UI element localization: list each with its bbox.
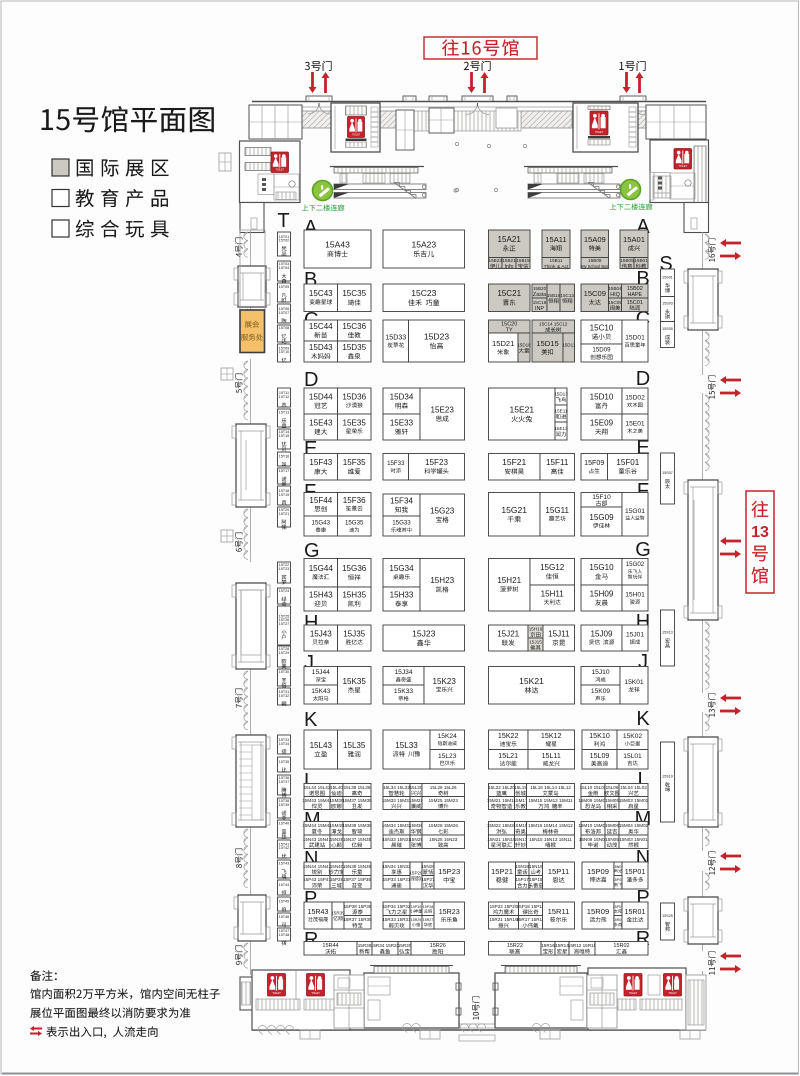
svg-text:15T05: 15T05 [279,285,289,289]
svg-text:15N43 15N41: 15N43 15N41 [303,837,332,842]
svg-text:15F34: 15F34 [390,497,413,506]
svg-text:K: K [304,709,318,731]
svg-text:15L10 15L08: 15L10 15L08 [580,785,607,790]
svg-text:15T16: 15T16 [279,454,289,458]
svg-text:15M30: 15M30 [409,823,423,828]
svg-text:15M10 15M08: 15M10 15M08 [578,823,608,828]
svg-text:15J44: 15J44 [312,669,330,676]
svg-text:15C43: 15C43 [309,289,333,298]
svg-text:15R26: 15R26 [430,943,446,949]
svg-text:15H01: 15H01 [625,592,645,599]
svg-text:15R09: 15R09 [587,907,609,916]
svg-text:15R37 15R35: 15R37 15R35 [343,917,372,922]
svg-text:15F23: 15F23 [425,458,448,467]
svg-text:15R30: 15R30 [398,943,412,948]
svg-text:15B11: 15B11 [550,258,563,263]
svg-text:15N44 15N42: 15N44 15N42 [303,864,332,869]
svg-text:15D36: 15D36 [342,393,366,402]
svg-text:15H21: 15H21 [497,576,521,585]
svg-text:15K21: 15K21 [519,676,544,686]
svg-text:15L11: 15L11 [542,752,561,760]
svg-text:15T40: 15T40 [279,822,289,826]
svg-text:15M28 15M26: 15M28 15M26 [429,823,459,828]
svg-text:15P34 15P32: 15P34 15P32 [383,904,411,909]
svg-text:15G34: 15G34 [389,564,414,573]
svg-text:15L30: 15L30 [410,785,423,790]
svg-text:15P22 15P20: 15P22 15P20 [490,904,518,909]
svg-text:15D15: 15D15 [536,339,558,348]
svg-text:15M44 15M42: 15M44 15M42 [302,823,332,828]
svg-text:15T27: 15T27 [279,622,289,626]
svg-text:15G44: 15G44 [309,564,334,573]
svg-text:15T42: 15T42 [279,846,289,850]
svg-text:15L21: 15L21 [498,752,518,760]
svg-text:15A11: 15A11 [545,235,566,244]
svg-text:15R12 15R10: 15R12 15R10 [568,943,597,948]
svg-text:15N25 15N23: 15N25 15N23 [429,837,458,842]
svg-text:15P39: 15P39 [330,877,344,882]
svg-text:15N39: 15N39 [330,837,344,842]
svg-text:15R27: 15R27 [423,918,434,922]
svg-text:15P11: 15P11 [548,867,569,876]
svg-text:15C10: 15C10 [590,324,614,333]
svg-text:15D02: 15D02 [625,395,645,402]
svg-text:15B04: 15B04 [608,286,622,291]
svg-text:15L40: 15L40 [330,785,343,790]
svg-text:15E01: 15E01 [625,421,645,428]
svg-text:15L23: 15L23 [438,753,457,760]
svg-text:15T44: 15T44 [279,883,289,887]
svg-text:15M18: 15M18 [513,823,527,828]
svg-text:15G01: 15G01 [625,508,645,515]
svg-text:15L44 15L42: 15L44 15L42 [304,785,331,790]
svg-text:15T08: 15T08 [279,326,289,330]
svg-text:15P43 15P41: 15P43 15P41 [303,877,331,882]
svg-text:15J43: 15J43 [310,630,332,639]
svg-text:15G36: 15G36 [342,564,367,573]
svg-text:15K12: 15K12 [541,732,562,740]
svg-text:15F44: 15F44 [309,496,332,505]
svg-text:15P15: 15P15 [529,877,543,882]
svg-text:15N05: 15N05 [605,837,619,842]
svg-text:15M15 15M13 15M11: 15M15 15M13 15M11 [528,798,573,803]
svg-text:15D21: 15D21 [492,339,514,348]
svg-text:15M43 15M41: 15M43 15M41 [302,798,332,803]
svg-text:15N26: 15N26 [421,864,435,869]
svg-text:15G35: 15G35 [345,520,364,527]
svg-text:15T19: 15T19 [279,493,289,497]
svg-text:15L38 15L36: 15L38 15L36 [344,785,371,790]
svg-text:15C20: 15C20 [501,322,517,328]
svg-text:15E23: 15E23 [431,406,455,415]
svg-text:15F43: 15F43 [309,458,332,467]
svg-text:15R17 15R15: 15R17 15R15 [516,917,545,922]
svg-text:15C21: 15C21 [497,289,521,298]
svg-text:15R11: 15R11 [548,907,570,916]
svg-text:HAPE: HAPE [627,292,642,298]
svg-text:15D34: 15D34 [390,393,414,402]
svg-text:15J21: 15J21 [497,630,519,639]
svg-text:D: D [636,368,650,390]
svg-text:15M22 15M20: 15M22 15M20 [487,823,517,828]
svg-text:15N16: 15N16 [529,864,543,869]
svg-text:15J11: 15J11 [548,630,570,639]
svg-text:15S13: 15S13 [662,631,673,635]
svg-text:15M05: 15M05 [605,798,619,803]
svg-text:15B21: 15B21 [502,258,516,263]
svg-text:15K43: 15K43 [311,688,331,695]
svg-text:15S07: 15S07 [662,471,673,475]
svg-text:My School Bus: My School Bus [581,264,608,269]
svg-text:15S19: 15S19 [662,775,673,779]
svg-text:15E09: 15E09 [590,419,614,428]
svg-text:15P37 15P35: 15P37 15P35 [343,877,371,882]
svg-text:K: K [636,708,650,730]
svg-text:15R21 15R19: 15R21 15R19 [489,917,518,922]
svg-text:15A01: 15A01 [623,235,645,244]
svg-text:15L09: 15L09 [590,752,610,760]
svg-text:15C35: 15C35 [342,289,366,298]
svg-text:Info: Info [505,264,514,270]
svg-text:15R22: 15R22 [507,943,523,949]
svg-text:15P01: 15P01 [625,868,646,876]
svg-text:15L04 15L02: 15L04 15L02 [620,785,647,790]
svg-text:15J10: 15J10 [591,669,609,676]
svg-text:15P17: 15P17 [516,877,530,882]
svg-text:15C13: 15C13 [560,293,574,298]
svg-text:15G12: 15G12 [540,563,565,572]
svg-text:15G21: 15G21 [501,505,527,515]
svg-text:15N21 15N19: 15N21 15N19 [487,837,516,842]
svg-text:15K09: 15K09 [591,688,611,695]
svg-text:15F11: 15F11 [546,458,569,467]
svg-text:15F21: 15F21 [502,457,526,467]
svg-text:15C01: 15C01 [627,300,643,306]
svg-text:15T02: 15T02 [279,239,289,243]
svg-text:15K35: 15K35 [343,677,367,686]
svg-text:15M09 15M07: 15M09 15M07 [578,798,608,803]
svg-text:15D23: 15D23 [424,332,449,342]
svg-text:15L33: 15L33 [395,741,418,750]
svg-text:15S01: 15S01 [662,276,673,280]
svg-text:15P33 15P31: 15P33 15P31 [383,877,411,882]
svg-text:15L01: 15L01 [623,753,642,760]
svg-text:15M29: 15M29 [409,798,423,803]
svg-text:15C05: 15C05 [608,300,622,305]
svg-text:TOILET: TOILET [276,169,285,172]
svg-text:Think & Act: Think & Act [544,264,569,270]
svg-text:TOILET: TOILET [352,134,361,137]
svg-text:15R33 15R31: 15R33 15R31 [382,917,411,922]
svg-text:15D10: 15D10 [590,393,614,402]
svg-text:15N18: 15N18 [515,864,529,869]
svg-text:15T24: 15T24 [279,589,289,593]
svg-text:15B19: 15B19 [516,258,530,263]
svg-text:15P29: 15P29 [409,871,423,876]
svg-text:15J01: 15J01 [626,632,644,639]
svg-text:15L16 15L14 15L12: 15L16 15L14 15L12 [530,785,571,790]
svg-text:15T32: 15T32 [279,694,289,698]
svg-text:15K10: 15K10 [589,732,610,740]
svg-text:15F35: 15F35 [343,458,366,467]
svg-text:15T07: 15T07 [279,311,289,315]
svg-text:15F36: 15F36 [343,496,366,505]
svg-text:15J34: 15J34 [394,669,412,676]
svg-text:15P18 15P16: 15P18 15P16 [517,904,545,909]
svg-text:15B02: 15B02 [627,286,643,292]
svg-text:15N40: 15N40 [330,864,344,869]
svg-text:15R34 15R32: 15R34 15R32 [371,943,400,948]
svg-text:15T34: 15T34 [279,742,289,746]
svg-text:15E21: 15E21 [509,405,534,415]
svg-text:15L35: 15L35 [343,741,366,750]
svg-text:15E33: 15E33 [390,419,414,428]
svg-text:15F01: 15F01 [616,458,639,467]
svg-text:15R44: 15R44 [322,943,338,949]
svg-text:15J09: 15J09 [591,630,613,639]
svg-text:15E35: 15E35 [343,419,367,428]
svg-text:TOILET: TOILET [668,992,677,995]
svg-text:15M34 15M32: 15M34 15M32 [382,823,412,828]
svg-text:15T45: 15T45 [279,899,289,903]
svg-text:15A21: 15A21 [498,235,522,244]
svg-text:15T43: 15T43 [279,862,289,866]
svg-text:TOILET: TOILET [629,992,638,995]
svg-text:15T23: 15T23 [279,567,289,571]
svg-text:15G02: 15G02 [626,561,645,568]
svg-text:15N15 15N13 15N11: 15N15 15N13 15N11 [529,837,572,842]
svg-text:15L34 15L32: 15L34 15L32 [383,785,410,790]
svg-text:15L06: 15L06 [606,785,619,790]
svg-text:15K33: 15K33 [394,688,414,695]
svg-text:15G23: 15G23 [430,507,455,516]
svg-text:15E43: 15E43 [309,419,333,428]
svg-text:15F10: 15F10 [592,494,611,501]
svg-text:G: G [635,539,651,561]
svg-text:15N38 15N36: 15N38 15N36 [343,864,372,869]
svg-text:15L43: 15L43 [310,741,333,750]
svg-text:15T39: 15T39 [279,803,289,807]
svg-text:15R29: 15R29 [411,918,422,922]
svg-text:15D33: 15D33 [385,334,406,342]
svg-text:15E13: 15E13 [554,426,568,431]
svg-text:15P09: 15P09 [587,867,609,876]
svg-text:15B01: 15B01 [634,258,648,263]
svg-text:15P28: 15P28 [423,905,433,909]
svg-text:15R16: 15R16 [541,943,555,948]
svg-text:15M03 15M01: 15M03 15M01 [619,798,649,803]
svg-text:15P38 15P36: 15P38 15P36 [344,904,372,909]
svg-text:15R01: 15R01 [625,908,646,916]
svg-text:15T17: 15T17 [279,469,289,473]
svg-text:15D43: 15D43 [309,343,333,352]
svg-text:15R02: 15R02 [613,943,629,949]
svg-text:15T37: 15T37 [279,780,289,784]
svg-text:Zasia: Zasia [533,292,546,298]
svg-text:15D35: 15D35 [342,343,366,352]
svg-text:15R39: 15R39 [331,911,345,916]
svg-text:15D13: 15D13 [554,392,568,397]
svg-text:15H23: 15H23 [430,576,454,585]
svg-text:15P27: 15P27 [421,877,435,882]
svg-text:15T15: 15T15 [279,434,289,438]
svg-text:15T04: 15T04 [279,266,289,270]
svg-text:15T10: 15T10 [279,350,289,354]
svg-text:15M06: 15M06 [605,823,619,828]
svg-text:15G09: 15G09 [589,513,614,522]
svg-text:15A43: 15A43 [325,240,350,250]
svg-text:15J35: 15J35 [343,630,365,639]
svg-text:15F33: 15F33 [387,460,405,467]
svg-text:15H16: 15H16 [529,627,543,632]
svg-text:15D44: 15D44 [309,393,333,402]
svg-text:15C14 15C12: 15C14 15C12 [539,322,568,327]
svg-text:15P23: 15P23 [438,867,460,876]
svg-text:15S05: 15S05 [662,327,673,331]
svg-text:15G10: 15G10 [589,563,614,572]
svg-text:15T13: 15T13 [279,411,289,415]
svg-text:15C18: 15C18 [533,300,547,305]
svg-text:15T35: 15T35 [279,760,289,764]
svg-text:15G33: 15G33 [392,520,411,527]
svg-text:15T21: 15T21 [279,512,289,516]
svg-text:15N09 15N07: 15N09 15N07 [579,837,608,842]
svg-text:15T46: 15T46 [279,915,289,919]
svg-text:15M37 15M35: 15M37 15M35 [342,798,372,803]
svg-text:15M17: 15M17 [513,798,527,803]
svg-text:15K24: 15K24 [438,733,458,740]
svg-text:15A09: 15A09 [584,235,606,244]
svg-text:15S03: 15S03 [662,302,673,306]
svg-text:15C36: 15C36 [342,322,366,331]
svg-text:15L22 15L20: 15L22 15L20 [488,785,515,790]
svg-text:15D01: 15D01 [625,335,645,342]
svg-text:15B09: 15B09 [588,258,602,263]
svg-text:15H43: 15H43 [309,591,333,600]
svg-text:TOILET: TOILET [311,992,320,995]
svg-text:15G43: 15G43 [312,520,331,527]
svg-text:15K22: 15K22 [498,732,519,740]
svg-text:15A23: 15A23 [411,240,436,250]
svg-text:15R43: 15R43 [308,908,329,916]
svg-text:15N03 15N01: 15N03 15N01 [619,837,648,842]
svg-text:15C09: 15C09 [584,289,606,298]
svg-text:15N29: 15N29 [409,837,423,842]
svg-text:15H11: 15H11 [541,590,565,599]
svg-text:15N34 15N32: 15N34 15N32 [382,864,411,869]
svg-text:15L18: 15L18 [514,785,527,790]
svg-text:15H35: 15H35 [342,591,366,600]
svg-text:15T29: 15T29 [279,651,289,655]
svg-text:HIQ: HIQ [610,292,620,298]
svg-text:TOILET: TOILET [595,131,604,134]
svg-text:15N37 15N35: 15N37 15N35 [343,837,372,842]
svg-text:15B20: 15B20 [533,286,547,291]
svg-text:15M38 15M36: 15M38 15M36 [342,823,372,828]
svg-text:13: 13 [751,524,769,541]
svg-text:15M21 15M19: 15M21 15M19 [487,798,517,803]
svg-text:15C44: 15C44 [309,322,333,331]
svg-text:15T30: 15T30 [279,670,289,674]
svg-text:15D11: 15D11 [562,343,576,348]
svg-text:15H33: 15H33 [390,591,414,600]
svg-text:15B23: 15B23 [489,258,503,263]
svg-text:15D18: 15D18 [517,343,531,348]
svg-text:15B05: 15B05 [620,258,634,263]
svg-text:15T48: 15T48 [279,933,289,937]
svg-text:15R23: 15R23 [439,908,460,916]
svg-text:15P21: 15P21 [491,867,513,876]
svg-text:INP: INP [535,306,544,312]
svg-text:15C23: 15C23 [411,288,436,298]
svg-text:15B18: 15B18 [547,293,561,298]
svg-text:15M33 15M31: 15M33 15M31 [382,798,412,803]
svg-text:TOILET: TOILET [272,992,281,995]
svg-text:15H09: 15H09 [590,590,614,599]
svg-text:15J15: 15J15 [529,640,542,645]
svg-text:15N17: 15N17 [514,837,528,842]
svg-text:15M04 15M02: 15M04 15M02 [619,823,649,828]
svg-text:15J23: 15J23 [412,629,436,639]
svg-text:15K02: 15K02 [623,733,643,740]
svg-text:T: T [277,210,289,232]
svg-text:15G11: 15G11 [545,506,569,515]
svg-text:15N33 15N31: 15N33 15N31 [382,837,411,842]
svg-text:15L28 15L26: 15L28 15L26 [430,785,457,790]
svg-text:15F09: 15F09 [584,459,604,467]
svg-text:15D09: 15D09 [592,347,611,354]
svg-text:15P30: 15P30 [411,905,421,909]
svg-text:15M16 15M14 15M12: 15M16 15M14 15M12 [528,823,573,828]
svg-text:15M25 15M23: 15M25 15M23 [429,798,459,803]
svg-text:15E11: 15E11 [555,409,568,414]
svg-text:TOILET: TOILET [679,165,688,168]
svg-text:15T12: 15T12 [279,395,289,399]
svg-text:15K23: 15K23 [433,677,457,686]
svg-text:15R38: 15R38 [358,943,372,948]
svg-text:15K01: 15K01 [624,679,644,686]
svg-text:15S25: 15S25 [662,914,673,918]
